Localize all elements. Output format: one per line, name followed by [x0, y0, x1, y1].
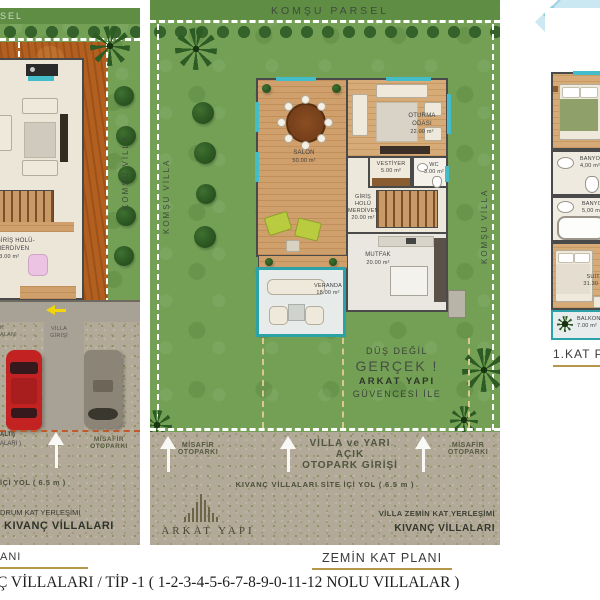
sofa	[376, 84, 428, 98]
armchair	[593, 296, 600, 308]
room-name: MUTFAK	[356, 252, 400, 260]
road-arrow-icon	[415, 436, 431, 472]
vestiyer-label: VESTİYER 5.00 m²	[372, 161, 410, 175]
pillow	[558, 253, 574, 263]
armchair	[0, 115, 12, 151]
yol-fragment: İÇİ YOL ( 6.5 m )	[0, 478, 66, 487]
room-name: SUİT -	[583, 274, 600, 281]
room-area: 5,00 m²	[577, 208, 600, 215]
room-area: 20.00 m²	[356, 260, 400, 267]
sink-icon	[557, 201, 574, 213]
room-name: VERANDA	[311, 283, 345, 290]
room-name: SALON	[278, 150, 330, 158]
room-area: 33.00 m²	[0, 254, 42, 261]
left-plan-title-fragment: ANI	[0, 551, 21, 564]
window	[28, 76, 54, 81]
dining-chair	[277, 118, 286, 127]
mutfak-room: MUTFAK 20.00 m²	[346, 232, 448, 312]
window	[255, 152, 259, 182]
room-area: 31.30 m²	[583, 281, 600, 288]
parcel-dashed-line-vertical	[106, 42, 108, 304]
suite-bedroom: SUİT - 31.30 m²	[551, 242, 600, 310]
room-name-2: MERDİVEN	[0, 246, 42, 254]
balcony-plant-icon	[557, 316, 573, 332]
car-windshield	[10, 362, 38, 374]
staircase	[0, 190, 54, 224]
misafir-otoparki-left-label: MİSAFİR OTOPARKI	[172, 442, 224, 456]
misafir-line2: OTOPARKI	[172, 449, 224, 456]
room-name: BANYO	[575, 156, 600, 163]
window	[386, 77, 431, 81]
oturma-odasi-room: OTURMA ODASI 22.00 m²	[346, 78, 448, 158]
kitchen-counter	[434, 238, 446, 302]
wc-room: WC 3.00 m²	[412, 156, 448, 188]
zemin-kat-plani-title: ZEMİN KAT PLANI	[312, 551, 452, 566]
parcel-dashed-left	[157, 24, 159, 430]
slogan-line3: ARKAT YAPI	[347, 376, 447, 387]
bush	[194, 142, 216, 164]
dining-chair	[317, 134, 326, 143]
arrow-stem	[287, 448, 290, 472]
room-name: WC	[422, 162, 446, 169]
villa-girisi-label: VİLLA GİRİŞİ	[46, 326, 72, 340]
bedroom-1	[551, 72, 600, 150]
kat1-title-underline	[553, 365, 600, 367]
misafir-line1: MİSAFİR	[84, 436, 134, 443]
dining-chair	[284, 134, 293, 143]
yellow-arrow-icon	[46, 305, 66, 315]
road-arrow-icon	[280, 436, 296, 472]
arrow-stem	[55, 309, 66, 312]
blanket	[560, 99, 598, 131]
misafir-otoparki-right-label: MİSAFİR OTOPARKI	[442, 442, 494, 456]
arkat-logo-skyline-icon	[184, 494, 218, 522]
right-panel-1kat: BANYO 4,00 m² BANYO 5,00 m² SUİT - 31.30	[545, 8, 600, 348]
bathroom-2: BANYO 5,00 m²	[551, 196, 600, 242]
sofa	[22, 98, 58, 114]
left-panel-bodrum-kat: SEL KOMŞU VİLLA GİRİŞ HOLÜ-	[0, 8, 140, 545]
neighbor-villa-left-label: KOMŞU VİLLA	[162, 148, 171, 234]
parking-divider	[468, 338, 470, 428]
arrow-stem	[55, 444, 58, 468]
toilet-icon	[432, 176, 442, 188]
veranda: VERANDA 18.00 m²	[256, 267, 346, 337]
vestiyer-room: VESTİYER 5.00 m²	[368, 156, 412, 188]
van-sunroof	[93, 380, 113, 392]
parcel-dashed-line	[150, 20, 500, 23]
coffee-table	[286, 240, 300, 252]
slogan-line1: DÜŞ DEĞİL	[347, 346, 447, 356]
gray-van	[84, 350, 122, 428]
banyo2-label: BANYO 5,00 m²	[577, 201, 600, 215]
balkon-label: BALKON 7.00 m²	[577, 316, 600, 330]
plant-icon	[262, 84, 271, 93]
neighbor-villa-label: KOMŞU VİLLA	[121, 126, 130, 210]
room-area: 7.00 m²	[577, 323, 600, 330]
misafir-line2: OTOPARKI	[442, 449, 494, 456]
banyo1-label: BANYO 4,00 m²	[575, 156, 600, 170]
plan-sheet: SEL KOMŞU VİLLA GİRİŞ HOLÜ-	[0, 0, 600, 600]
arrow-stem	[167, 448, 170, 472]
mutfak-label: MUTFAK 20.00 m²	[356, 252, 400, 267]
stove-icon	[406, 238, 416, 244]
slogan-block: DÜŞ DEĞİL GERÇEK ! ARKAT YAPI GÜVENCESİ …	[347, 346, 447, 399]
balcony: BALKON 7.00 m²	[551, 310, 600, 340]
veranda-label: VERANDA 18.00 m²	[311, 283, 345, 297]
left-title-underline	[0, 567, 88, 569]
room-name: OTURMA	[400, 113, 444, 121]
alari-fragment: ALARI )	[0, 441, 21, 448]
room-area: 50.00 m²	[278, 158, 330, 165]
center-panel-zemin-kat: KOMŞU PARSEL KOMŞU VİLLA KOMŞU VİLLA	[150, 0, 500, 545]
neighbor-villa-right-label: KOMŞU VİLLA	[480, 178, 489, 264]
plant-icon	[329, 258, 337, 266]
fragment-line1: K	[0, 325, 16, 332]
parcel-label-fragment: SEL	[0, 11, 23, 22]
room-name-2: ODASI	[400, 121, 444, 129]
arrow-stem	[422, 448, 425, 472]
lounge-chair	[264, 211, 293, 236]
rug	[24, 122, 56, 158]
suit-label: SUİT - 31.30 m²	[583, 274, 600, 288]
fragment-line2: ALANI	[0, 332, 16, 339]
staircase	[376, 190, 438, 228]
room-area: 20.00 m²	[348, 215, 378, 222]
bush	[196, 184, 216, 204]
room-name-2: MERDİVEN	[348, 208, 378, 215]
window	[276, 77, 316, 81]
room-area: 5.00 m²	[372, 168, 410, 175]
room-area: 18.00 m²	[311, 290, 345, 297]
yerlesim-fragment: DRUM KAT YERLEŞİMİ	[0, 508, 80, 517]
alti-fragment: ALTI)	[0, 432, 15, 439]
wicker-chair	[305, 306, 324, 325]
giris-holu-label: GİRİŞ HOLÜ- MERDİVEN 33.00 m²	[0, 238, 42, 261]
edge-text-fragment: K ALANI	[0, 325, 16, 339]
misafir-line1: MİSAFİR	[442, 442, 494, 449]
bathtub-icon	[557, 216, 600, 240]
footer-title: Ç VİLLALARI / TİP -1 ( 1-2-3-4-5-6-7-8-9…	[0, 574, 557, 593]
street-label: KIVANÇ VİLLALARI SİTE İÇİ YOL ( 6.5 m )	[225, 480, 425, 489]
van-windshield	[88, 408, 118, 420]
tv-unit	[60, 114, 68, 162]
salon-label: SALON 50.00 m²	[278, 150, 330, 165]
wicker-chair	[269, 306, 288, 325]
left-brand-label: KIVANÇ VİLLALARI	[4, 520, 114, 533]
oturma-label: OTURMA ODASI 22.00 m²	[400, 113, 444, 136]
window	[255, 102, 259, 132]
room-name: GİRİŞ HOLÜ	[348, 194, 378, 208]
red-car	[6, 350, 42, 430]
giris-holu-label: GİRİŞ HOLÜ MERDİVEN 20.00 m²	[348, 194, 378, 223]
road-dashed-boundary	[150, 428, 500, 431]
entrance-line1: VİLLA ve YARI AÇIK	[295, 438, 405, 460]
dining-chair	[301, 141, 310, 150]
room-area: 22.00 m²	[400, 129, 444, 136]
komsu-parsel-label: KOMŞU PARSEL	[230, 5, 430, 18]
car-rear-window	[11, 408, 37, 418]
dining-chair	[284, 102, 293, 111]
bush	[114, 246, 134, 266]
room-area: 3.00 m²	[422, 169, 446, 176]
bush	[114, 86, 134, 106]
kitchen-island	[390, 266, 428, 296]
slogan-line2: GERÇEK !	[347, 358, 447, 374]
sidewalk	[0, 300, 140, 324]
left-villa-plan: GİRİŞ HOLÜ- MERDİVEN 33.00 m²	[0, 58, 84, 300]
kat1-plani-title: 1.KAT PLANI	[553, 347, 600, 361]
slogan-line4: GÜVENCESİ İLE	[347, 389, 447, 399]
caption-line2: KIVANÇ VİLLALARI	[330, 523, 495, 535]
otopark-girisi-label: VİLLA ve YARI AÇIK OTOPARK GİRİŞİ	[295, 438, 405, 471]
pillow	[562, 87, 580, 98]
nightstand	[553, 86, 558, 92]
landing	[0, 222, 74, 232]
room-name: BALKON	[577, 316, 600, 323]
bush	[192, 102, 214, 124]
plant-icon	[265, 258, 273, 266]
parking-boundary-dashed	[0, 430, 140, 432]
sofa	[22, 160, 58, 176]
misafir-otoparki-label: MİSAFİR OTOPARKI	[84, 436, 134, 450]
salon-room: SALON 50.00 m²	[256, 78, 348, 257]
window	[573, 71, 600, 75]
wc-label: WC 3.00 m²	[422, 162, 446, 176]
arrow-head	[46, 305, 55, 315]
equipment-light	[30, 67, 35, 72]
villa-girisi-line2: GİRİŞİ	[46, 333, 72, 340]
palm-tree	[175, 28, 217, 70]
parking-divider	[342, 338, 344, 428]
misafir-line2: OTOPARKI	[84, 443, 134, 450]
plant-icon	[332, 84, 341, 93]
window	[447, 94, 451, 134]
bush	[194, 226, 216, 248]
dining-chair	[324, 118, 333, 127]
veranda-table	[288, 304, 305, 321]
caption-line1: VİLLA ZEMİN KAT YERLEŞİMİ	[330, 509, 495, 518]
dining-chair	[317, 102, 326, 111]
toilet-icon	[585, 176, 599, 193]
pillow	[580, 87, 598, 98]
pillow	[574, 253, 590, 263]
tv-console	[380, 146, 430, 154]
parking-divider	[262, 338, 264, 428]
room-area: 4,00 m²	[575, 163, 600, 170]
lounge-chair	[294, 217, 322, 241]
car-roof	[11, 378, 37, 404]
dining-chair	[301, 95, 310, 104]
wardrobe	[372, 178, 410, 186]
chaise	[352, 94, 368, 136]
entrance-line2: OTOPARK GİRİŞİ	[295, 460, 405, 471]
bathroom-1: BANYO 4,00 m²	[551, 150, 600, 196]
zemin-title-underline	[312, 568, 452, 570]
room-name: VESTİYER	[372, 161, 410, 168]
palm-tree	[90, 26, 130, 66]
room-name: GİRİŞ HOLÜ-	[0, 238, 42, 246]
misafir-line1: MİSAFİR	[172, 442, 224, 449]
entrance-steps	[448, 290, 466, 318]
room-name: BANYO	[577, 201, 600, 208]
road-arrow-icon	[48, 432, 64, 468]
deck	[20, 286, 76, 299]
sink-icon	[557, 157, 574, 169]
bed	[559, 84, 600, 140]
arkat-logo-text: ARKAT YAPI	[158, 525, 258, 538]
